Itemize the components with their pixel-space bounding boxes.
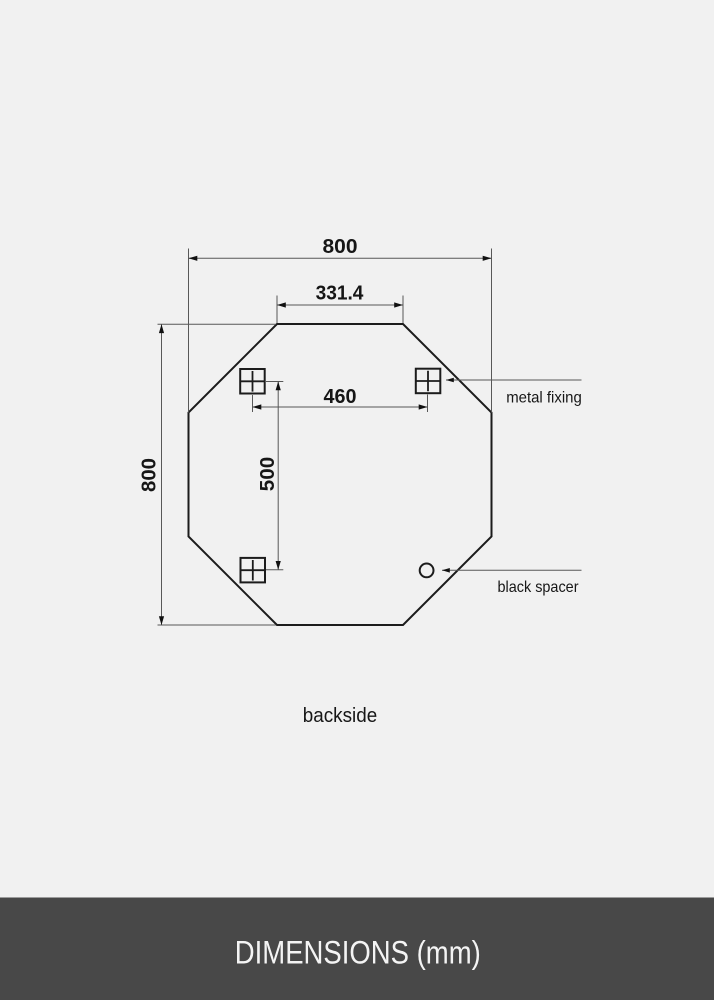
svg-text:metal fixing: metal fixing (506, 390, 582, 407)
svg-text:DIMENSIONS (mm): DIMENSIONS (mm) (235, 935, 481, 971)
svg-text:500: 500 (256, 457, 279, 492)
svg-text:331.4: 331.4 (316, 281, 364, 304)
svg-text:460: 460 (324, 385, 357, 408)
svg-text:800: 800 (138, 458, 161, 492)
svg-text:black spacer: black spacer (498, 579, 580, 596)
svg-text:800: 800 (323, 235, 358, 258)
svg-text:backside: backside (303, 704, 378, 727)
